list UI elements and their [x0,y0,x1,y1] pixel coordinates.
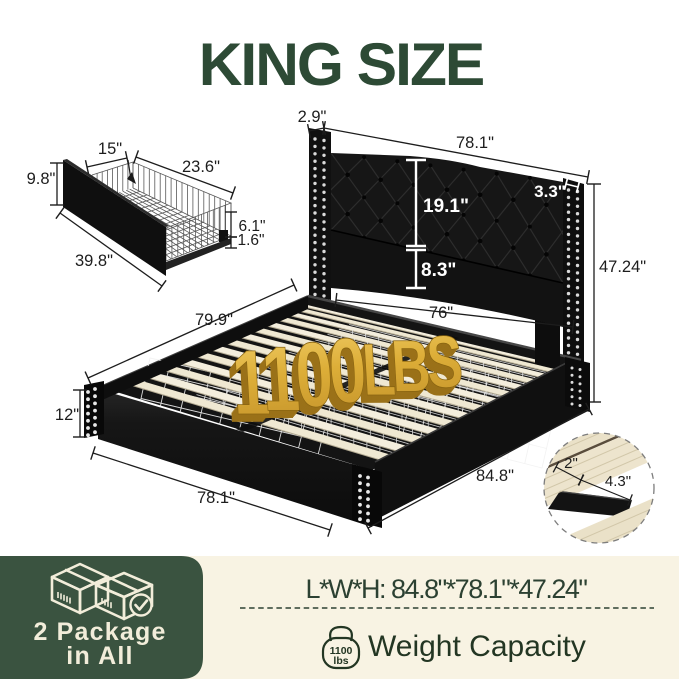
svg-text:4.3": 4.3" [605,473,631,490]
svg-text:9.8": 9.8" [27,170,56,188]
svg-text:84.8": 84.8" [476,467,514,485]
svg-text:12": 12" [55,406,79,424]
svg-text:23.6": 23.6" [182,158,220,176]
svg-text:lbs: lbs [333,655,348,667]
svg-text:3.3": 3.3" [534,182,566,201]
svg-text:in All: in All [66,642,133,670]
svg-text:Weight Capacity: Weight Capacity [368,630,586,663]
svg-text:47.24": 47.24" [599,258,646,276]
svg-text:15": 15" [98,140,122,158]
svg-text:1.6": 1.6" [237,232,264,249]
svg-text:76": 76" [429,304,453,322]
svg-text:79.9": 79.9" [195,311,233,329]
svg-text:19.1": 19.1" [423,196,469,217]
svg-text:8.3": 8.3" [421,260,456,281]
svg-text:78.1": 78.1" [197,489,235,507]
svg-text:78.1": 78.1" [456,134,494,152]
svg-text:39.8": 39.8" [75,252,113,270]
svg-text:2": 2" [564,455,578,472]
svg-text:L*W*H: 84.8"*78.1"*47.24": L*W*H: 84.8"*78.1"*47.24" [306,574,588,604]
svg-text:KING SIZE: KING SIZE [199,30,484,98]
svg-text:2.9": 2.9" [298,108,327,126]
